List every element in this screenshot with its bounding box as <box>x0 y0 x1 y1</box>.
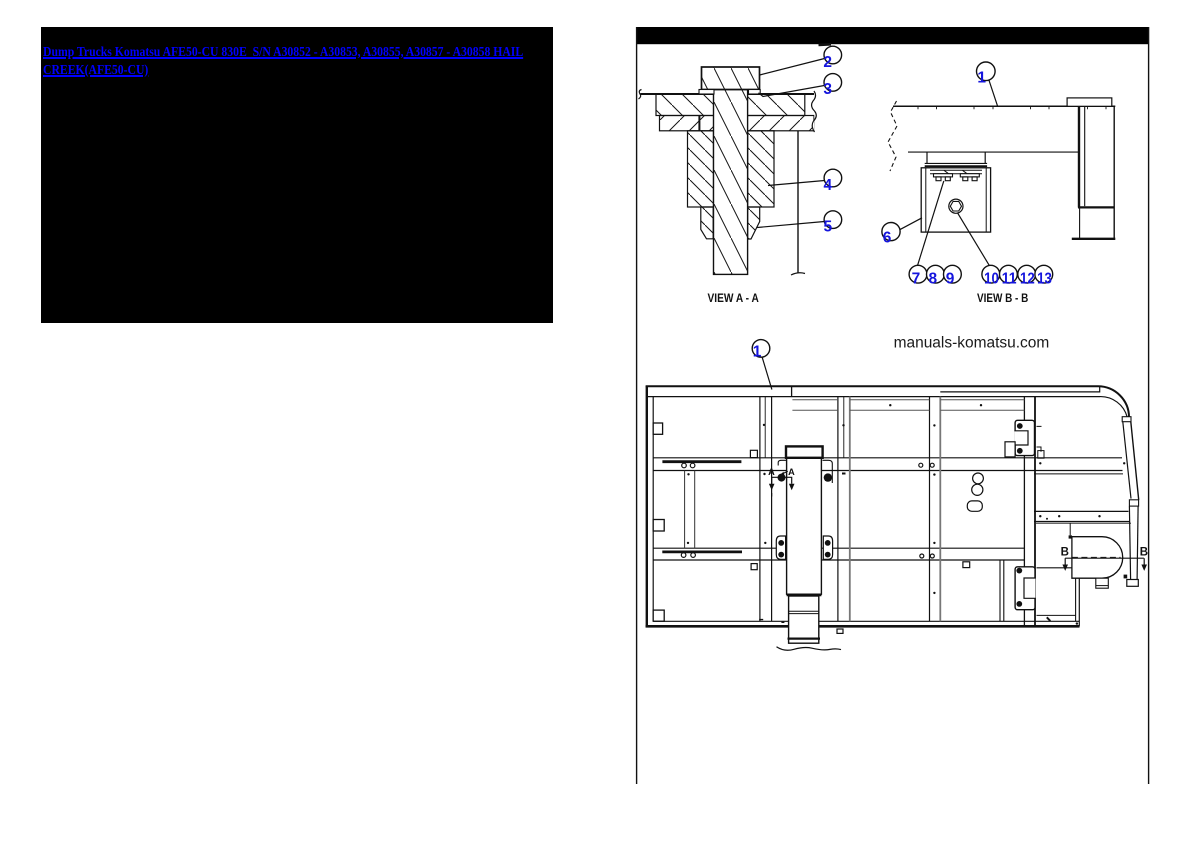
svg-text:VIEW A - A: VIEW A - A <box>708 291 760 305</box>
svg-text:9: 9 <box>946 270 955 287</box>
svg-text:1: 1 <box>753 343 762 360</box>
svg-text:13: 13 <box>1037 270 1052 287</box>
svg-text:A: A <box>768 467 775 477</box>
svg-text:3: 3 <box>823 81 832 98</box>
svg-text:4: 4 <box>823 177 832 194</box>
svg-text:8: 8 <box>928 270 937 287</box>
svg-text:1: 1 <box>977 69 986 86</box>
svg-text:B: B <box>1140 547 1148 559</box>
svg-text:10: 10 <box>984 270 999 287</box>
svg-text:A: A <box>788 467 795 477</box>
svg-text:manuals-komatsu.com: manuals-komatsu.com <box>894 334 1050 351</box>
svg-text:2: 2 <box>823 54 832 71</box>
svg-text:VIEW B - B: VIEW B - B <box>977 291 1028 305</box>
svg-text:12: 12 <box>1020 270 1035 287</box>
svg-text:6: 6 <box>883 230 892 247</box>
svg-text:11: 11 <box>1002 270 1017 287</box>
svg-text:5: 5 <box>823 218 832 235</box>
svg-text:B: B <box>1061 547 1069 559</box>
svg-text:7: 7 <box>912 270 921 287</box>
